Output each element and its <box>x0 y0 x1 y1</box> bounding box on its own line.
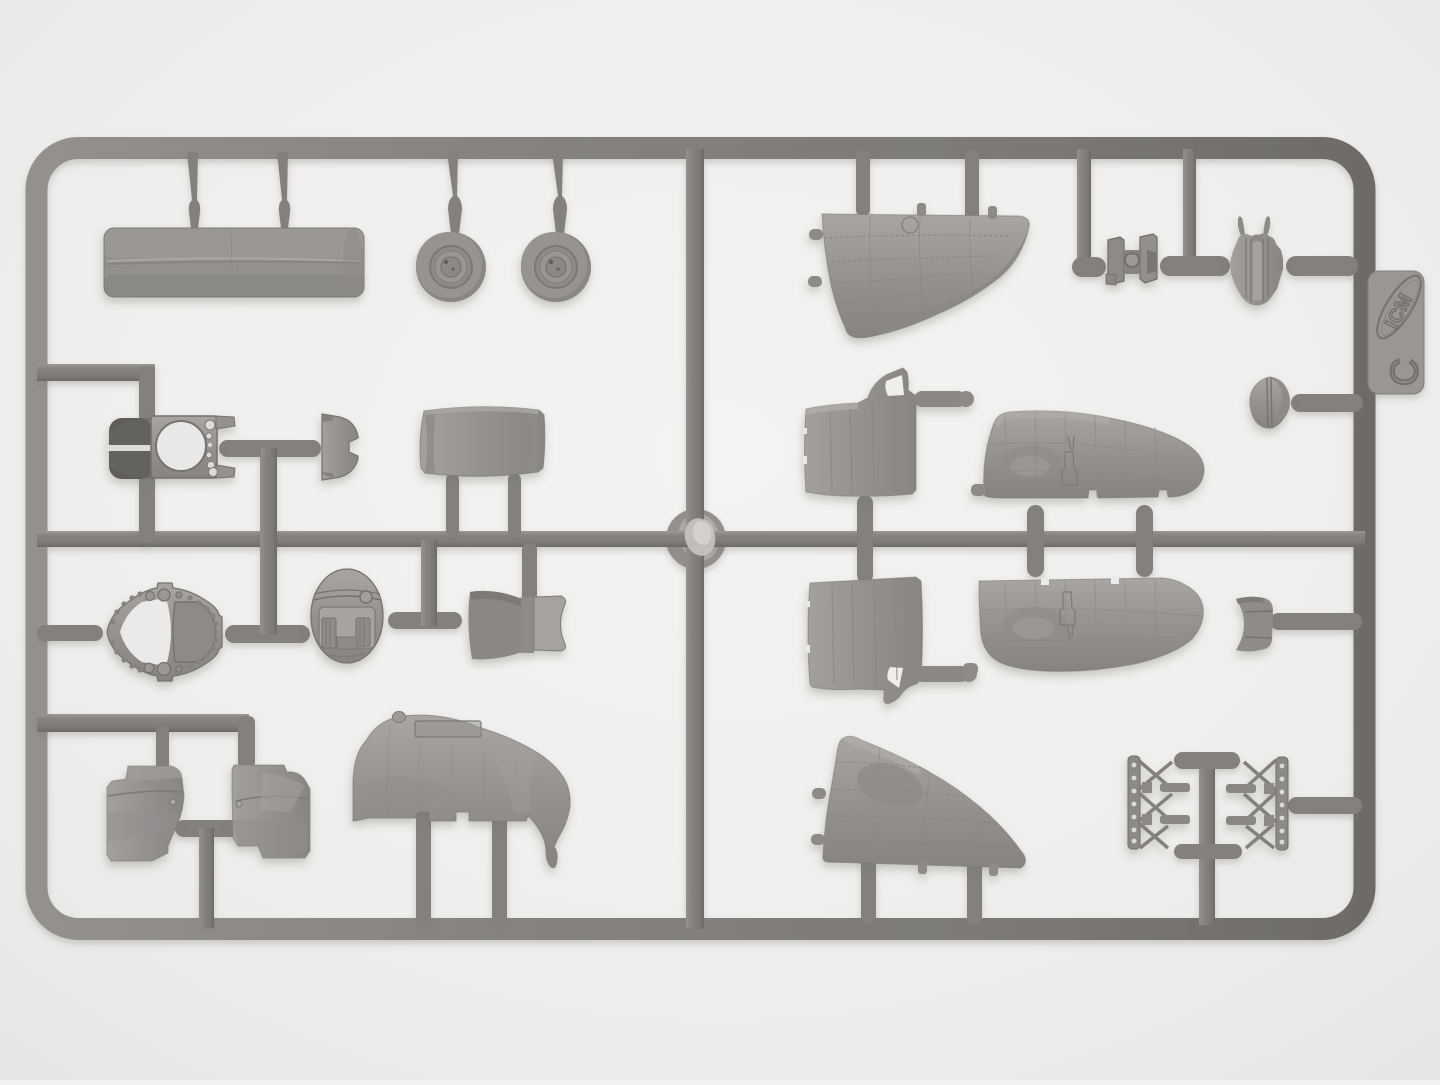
svg-text:C: C <box>1383 357 1427 388</box>
